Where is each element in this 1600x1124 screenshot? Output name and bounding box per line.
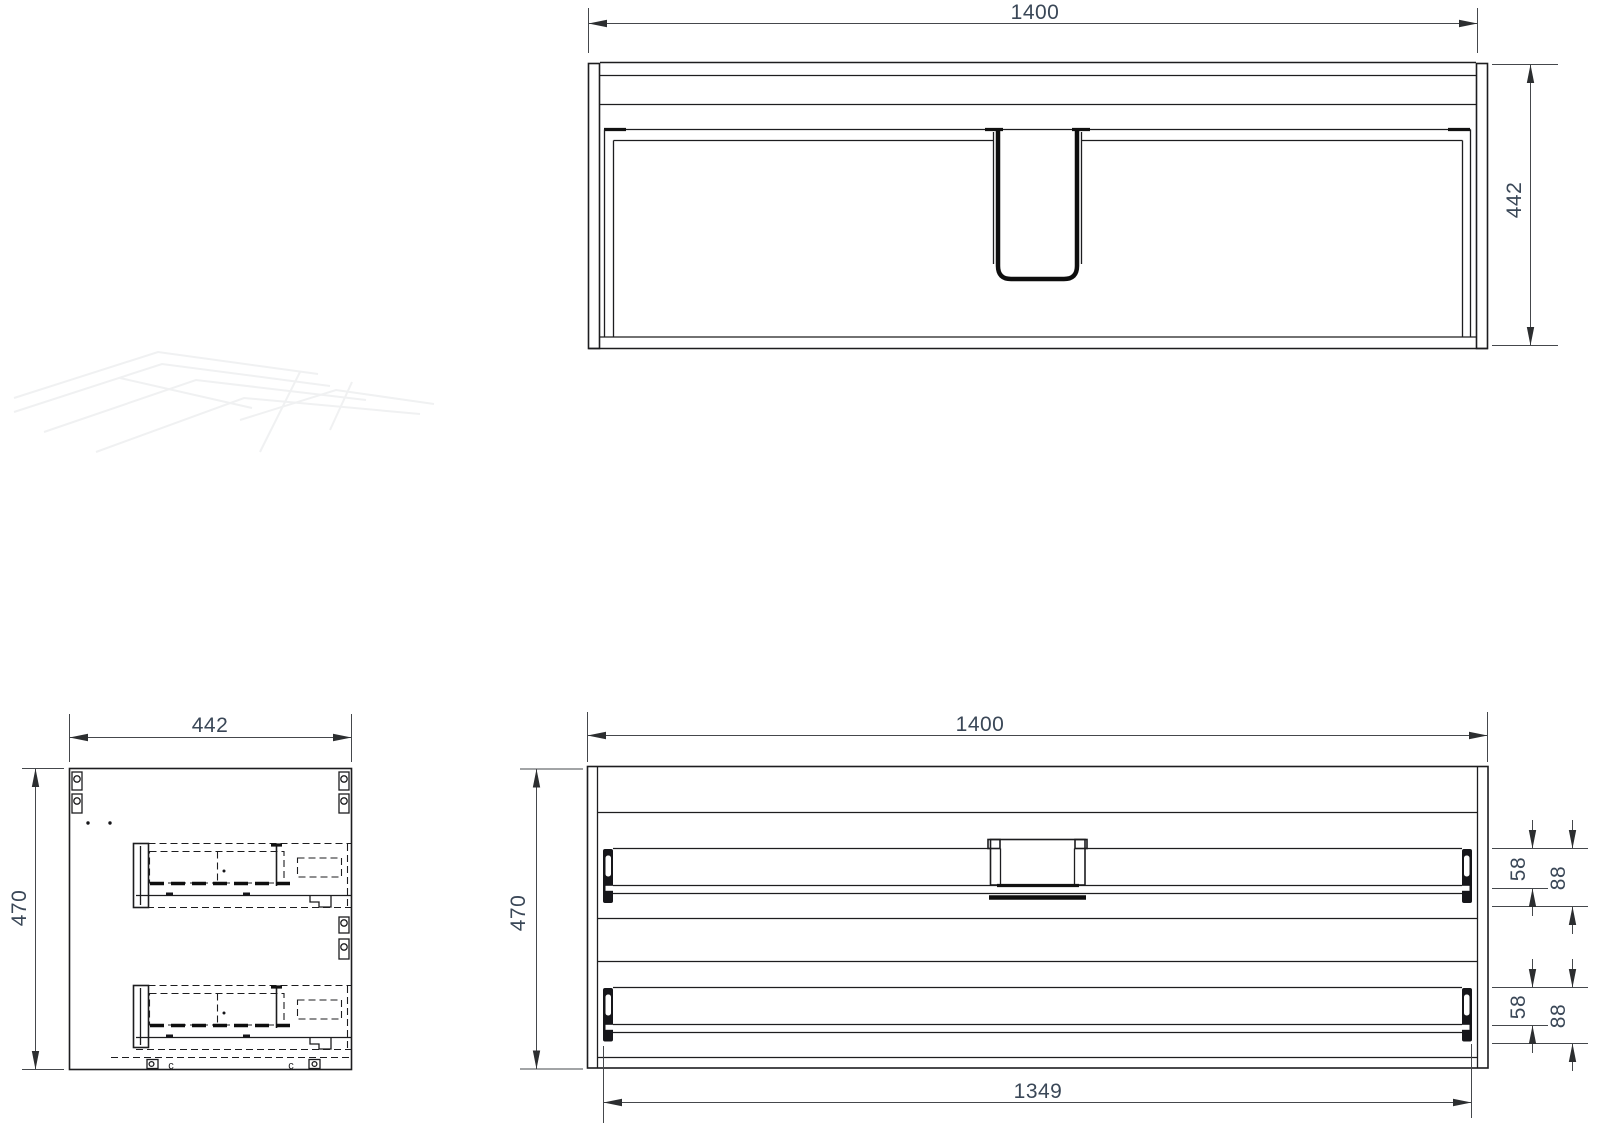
side-view-width-dimension: 442: [70, 714, 352, 762]
dim-front-width-label: 1400: [956, 713, 1005, 736]
front-view-height-dimension: 470: [507, 769, 583, 1069]
front-view: 1400 470 58 88: [507, 712, 1588, 1123]
runner-span-dimension: 1349: [604, 1044, 1472, 1123]
front-view-lower-drawer: [603, 988, 1472, 1042]
hardware-mark-right: c: [288, 1060, 294, 1072]
side-view-upper-drawer-runner: [134, 844, 353, 909]
hardware-mark-left: c: [168, 1060, 174, 1072]
cabinet-drawing-canvas: 1400 442: [0, 0, 1600, 1124]
upper-drawer-dimensions: 58 88: [1492, 820, 1588, 934]
side-view-height-dimension: 470: [8, 769, 64, 1070]
front-view-width-dimension: 1400: [588, 712, 1488, 762]
lower-right-runner-bracket: [1462, 988, 1472, 1042]
dim-lower-drawer-inner-label: 58: [1507, 995, 1530, 1019]
sink-cutout-box: [988, 840, 1087, 898]
technical-drawing-page: 1400 442: [0, 0, 1600, 1124]
top-view-sink-cutout: [985, 130, 1090, 280]
side-view-top-right-fittings: [339, 772, 349, 813]
front-view-carcass: [588, 767, 1489, 1069]
top-view-right-side-panel: [1477, 64, 1488, 349]
dim-upper-drawer-inner-label: 58: [1507, 857, 1530, 881]
dim-side-width-label: 442: [192, 714, 229, 737]
top-view-drawer-box: [604, 130, 1471, 338]
top-view: 1400 442: [589, 1, 1559, 349]
side-view-top-left-fittings: [72, 772, 82, 813]
watermark-ghost-drawing: [14, 352, 434, 452]
dim-side-height-label: 470: [8, 890, 31, 927]
top-view-carcass: [589, 63, 1489, 349]
top-view-width-dimension: 1400: [589, 1, 1478, 53]
dim-front-height-label: 470: [507, 895, 530, 932]
upper-left-runner-bracket: [603, 849, 613, 903]
top-view-depth-dimension: 442: [1492, 65, 1558, 346]
side-view-mid-right-fittings: [339, 917, 349, 959]
side-view-dowel-mark: [108, 821, 111, 824]
dim-upper-drawer-outer-label: 88: [1547, 866, 1570, 890]
dim-runner-span-label: 1349: [1014, 1080, 1063, 1103]
upper-right-runner-bracket: [1462, 849, 1472, 903]
top-view-left-side-panel: [589, 64, 600, 349]
lower-left-runner-bracket: [603, 988, 613, 1042]
side-view-lower-drawer-runner: [134, 986, 353, 1051]
side-view-dowel-mark: [86, 821, 89, 824]
front-view-upper-drawer: [603, 840, 1472, 904]
lower-drawer-dimensions: 58 88: [1492, 959, 1588, 1071]
side-view-panel-outline: [70, 769, 352, 1070]
dim-lower-drawer-outer-label: 88: [1547, 1004, 1570, 1028]
dim-top-depth-label: 442: [1503, 182, 1526, 219]
side-view: c c 442 470: [8, 714, 352, 1072]
dim-top-width-label: 1400: [1011, 1, 1060, 24]
